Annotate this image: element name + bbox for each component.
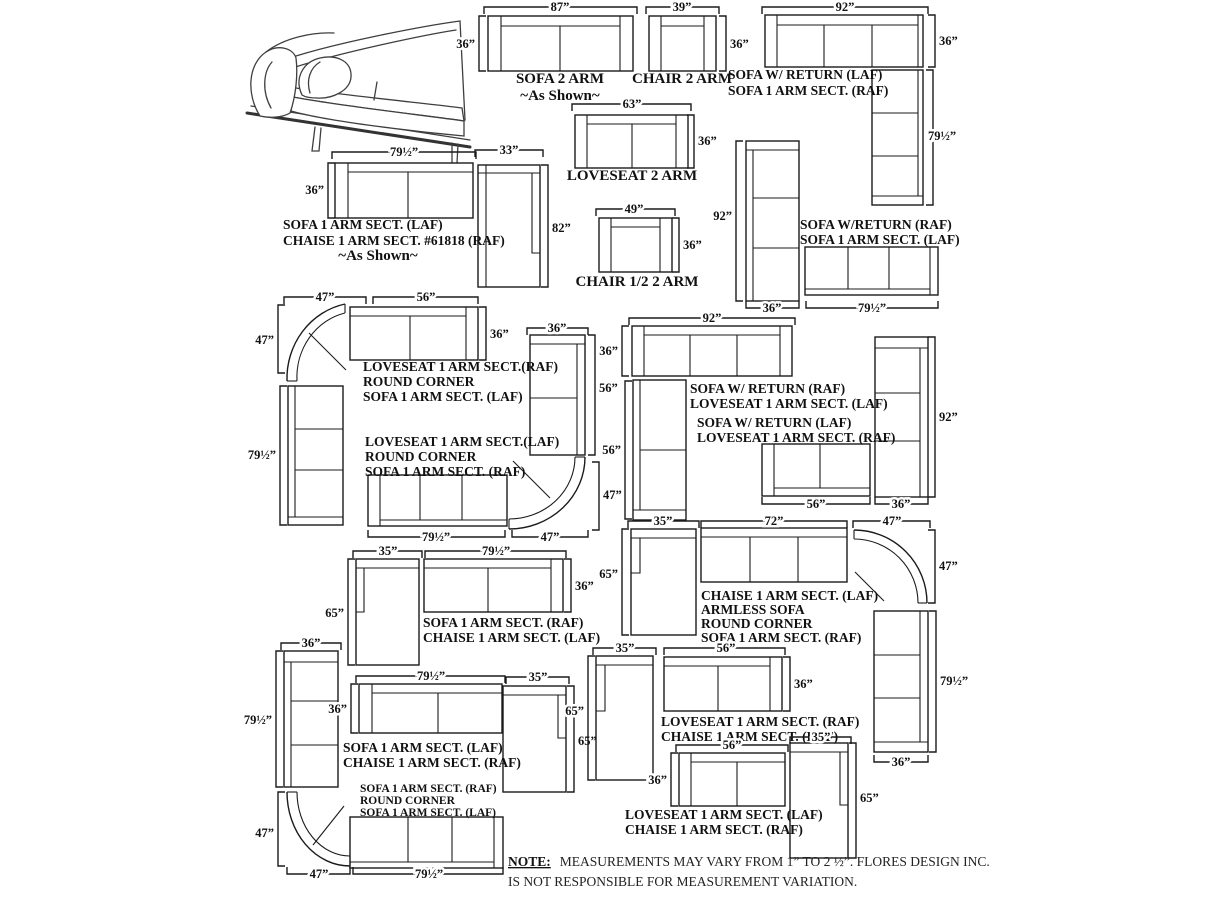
- config-label-2: ROUND CORNER: [365, 449, 477, 464]
- config-sofa-return-laf: 92” 36” 79½” SOFA W/ RETURN (LAF) SOFA 1…: [728, 0, 958, 205]
- svg-text:NOTE: MEASUREMENTS MAY V: NOTE: MEASUREMENTS MAY VARY FROM 1” TO 2…: [508, 853, 990, 870]
- config-corner-raf: 47” 56” 47” 36” 79½” LOVESEAT 1 ARM SECT…: [248, 290, 558, 525]
- config-label-3: ROUND CORNER: [701, 616, 813, 631]
- dim-sofa1-width: 36”: [302, 636, 321, 650]
- dim-sofa-width: 79½”: [417, 669, 445, 683]
- config-loveseat-chaise-laf: 56” 36” 35” 65” LOVESEAT 1 ARM SECT. (LA…: [625, 730, 879, 858]
- config-label-1: SOFA 1 ARM SECT. (RAF): [423, 615, 583, 630]
- config-label-1: SOFA W/ RETURN (RAF): [690, 381, 845, 396]
- config-label-2: ROUND CORNER: [360, 795, 456, 807]
- dim-chaise-width: 35”: [529, 670, 548, 684]
- config-label-1: SOFA W/ RETURN (LAF): [697, 415, 851, 430]
- dim-sofa1-length: 79½”: [244, 713, 272, 727]
- dim-depth: 36”: [698, 134, 717, 148]
- config-label-1: LOVESEAT 1 ARM SECT.(RAF): [363, 359, 558, 374]
- dim-corner-width: 47”: [541, 530, 560, 544]
- config-label-2: CHAISE 1 ARM SECT. (RAF): [343, 755, 521, 770]
- note-line-2: IS NOT RESPONSIBLE FOR MEASUREMENT VARIA…: [508, 874, 857, 889]
- config-loveseat-2-arm: 63” 36” LOVESEAT 2 ARM: [567, 97, 717, 184]
- dim-sofa-depth: 36”: [305, 183, 324, 197]
- dim-loveseat-width: 56”: [717, 641, 736, 655]
- dim-depth: 36”: [683, 238, 702, 252]
- dim-corner-depth: 47”: [939, 559, 958, 573]
- config-title: CHAIR 1/2 2 ARM: [576, 274, 699, 290]
- config-label-1: LOVESEAT 1 ARM SECT.(LAF): [365, 434, 559, 449]
- measurement-note: NOTE: MEASUREMENTS MAY VARY FROM 1” TO 2…: [508, 853, 990, 889]
- dim-chaise-width: 35”: [812, 730, 831, 744]
- dim-loveseat-depth: 36”: [794, 677, 813, 691]
- dim-sofa-depth: 36”: [328, 702, 347, 716]
- dim-sofa-width: 79½”: [390, 145, 418, 159]
- config-label-3: SOFA 1 ARM SECT. (LAF): [363, 389, 523, 404]
- dim-width: 63”: [623, 97, 642, 111]
- dim-sofa-width: 79½”: [422, 530, 450, 544]
- config-label-1: SOFA W/ RETURN (LAF): [728, 67, 882, 82]
- config-label-1: LOVESEAT 1 ARM SECT. (RAF): [661, 714, 859, 729]
- config-sofa-2-arm: 87” 36” SOFA 2 ARM ~As Shown~: [456, 0, 637, 104]
- dim-chaise-width: 35”: [654, 514, 673, 528]
- dim-sofa-depth: 36”: [575, 579, 594, 593]
- dim-chaise-length: 65”: [860, 791, 879, 805]
- dim-sofa-width: 92”: [703, 311, 722, 325]
- config-label-2: LOVESEAT 1 ARM SECT. (LAF): [690, 396, 888, 411]
- config-return-loveseat-laf: 56” 92” 36” SOFA W/ RETURN (LAF) LOVESEA…: [697, 337, 958, 511]
- dim-loveseat-width: 36”: [548, 321, 567, 335]
- dim-depth: 36”: [730, 37, 749, 51]
- dim-sofa-width: 79½”: [482, 544, 510, 558]
- dim-corner-width: 47”: [310, 867, 329, 881]
- config-title: CHAIR 2 ARM: [632, 71, 732, 87]
- dim-loveseat-length: 56”: [602, 443, 621, 457]
- config-label-1: SOFA W/RETURN (RAF): [800, 217, 952, 232]
- config-label-2: SOFA 1 ARM SECT. (LAF): [800, 232, 960, 247]
- dim-width: 87”: [551, 0, 570, 14]
- config-label-3: SOFA 1 ARM SECT. (RAF): [365, 464, 525, 479]
- config-title: SOFA 2 ARM: [516, 71, 604, 87]
- dim-width: 39”: [673, 0, 692, 14]
- dim-loveseat-width: 56”: [723, 738, 742, 752]
- config-label-2: SOFA 1 ARM SECT. (RAF): [728, 83, 888, 98]
- dim-chaise-width: 33”: [500, 143, 519, 157]
- dim-chaise-length: 65”: [325, 606, 344, 620]
- dim-return-width: 36”: [763, 301, 782, 315]
- dim-armless-width: 72”: [765, 514, 784, 528]
- dim-corner-depth: 47”: [255, 333, 274, 347]
- config-label-2: CHAISE 1 ARM SECT. (LAF): [423, 630, 600, 645]
- dim-sofa-length: 92”: [939, 410, 958, 424]
- config-loveseat-chaise-raf: 35” 65” 56” 36” LOVESEAT 1 ARM SECT. (RA…: [565, 641, 859, 780]
- dim-sofa-width: 36”: [892, 497, 911, 511]
- dim-chaise-width: 35”: [379, 544, 398, 558]
- dim-return: 79½”: [928, 129, 956, 143]
- dim-chaise-length: 82”: [552, 221, 571, 235]
- dim-loveseat-depth: 36”: [648, 773, 667, 787]
- dim-depth: 36”: [939, 34, 958, 48]
- dim-loveseat-width: 56”: [807, 497, 826, 511]
- config-label-2: ROUND CORNER: [363, 374, 475, 389]
- dim-sofa-length: 79½”: [940, 674, 968, 688]
- config-chair-half: 49” 36” CHAIR 1/2 2 ARM: [576, 202, 702, 290]
- note-line-1: MEASUREMENTS MAY VARY FROM 1” TO 2 ½”. F…: [560, 854, 990, 869]
- config-label-1: SOFA 1 ARM SECT. (RAF): [360, 783, 497, 795]
- dim-return-length: 92”: [713, 209, 732, 223]
- dim-corner-depth: 47”: [603, 488, 622, 502]
- dim-sofa2-width: 79½”: [415, 867, 443, 881]
- dim-width: 92”: [836, 0, 855, 14]
- config-label-2: CHAISE 1 ARM SECT. #61818 (RAF): [283, 233, 505, 248]
- dim-sofa-width: 36”: [892, 755, 911, 769]
- config-label-2: ARMLESS SOFA: [701, 602, 805, 617]
- spec-sheet: 87” 36” SOFA 2 ARM ~As Shown~ 39” 36” CH…: [0, 0, 1220, 900]
- dim-width: 49”: [625, 202, 644, 216]
- dim-depth: 36”: [456, 37, 475, 51]
- dim-sofa-depth: 36”: [599, 344, 618, 358]
- dim-corner-depth: 47”: [255, 826, 274, 840]
- config-subtitle: ~As Shown~: [520, 88, 600, 104]
- dim-loveseat-length: 56”: [599, 381, 618, 395]
- config-sofa-chaise-raf: 35” 65” 79½” 36” SOFA 1 ARM SECT. (RAF) …: [325, 544, 600, 665]
- sofa-illustration: [247, 21, 470, 163]
- dim-loveseat-width: 56”: [417, 290, 436, 304]
- config-corner-laf: 36” 56” 47” 47” 79½” LOVESEAT 1 ARM SECT…: [365, 321, 622, 544]
- config-label-2: CHAISE 1 ARM SECT. (RAF): [625, 822, 803, 837]
- config-label-3: SOFA 1 ARM SECT. (LAF): [360, 807, 496, 819]
- config-title: LOVESEAT 2 ARM: [567, 168, 697, 184]
- dim-corner-width: 47”: [316, 290, 335, 304]
- dim-chaise-length: 65”: [565, 704, 584, 718]
- config-label-1: LOVESEAT 1 ARM SECT. (LAF): [625, 807, 823, 822]
- config-sofa-chaise-61818: 79½” 36” 33” 82” SOFA 1 ARM SECT. (LAF) …: [283, 143, 571, 287]
- config-label-1: SOFA 1 ARM SECT. (LAF): [343, 740, 503, 755]
- dim-loveseat-depth: 36”: [490, 327, 509, 341]
- dim-corner-width: 47”: [883, 514, 902, 528]
- config-label-1: CHAISE 1 ARM SECT. (LAF): [701, 588, 878, 603]
- dim-chaise-width: 35”: [616, 641, 635, 655]
- config-subtitle: ~As Shown~: [338, 248, 418, 264]
- config-sofa-chaise-laf: 79½” 36” 35” 65” SOFA 1 ARM SECT. (LAF) …: [328, 669, 597, 792]
- dim-sofa-width: 79½”: [858, 301, 886, 315]
- config-label-2: LOVESEAT 1 ARM SECT. (RAF): [697, 430, 895, 445]
- note-prefix: NOTE:: [508, 854, 551, 869]
- dim-sofa-length: 79½”: [248, 448, 276, 462]
- dim-chaise-length: 65”: [599, 567, 618, 581]
- config-label-1: SOFA 1 ARM SECT. (LAF): [283, 217, 443, 232]
